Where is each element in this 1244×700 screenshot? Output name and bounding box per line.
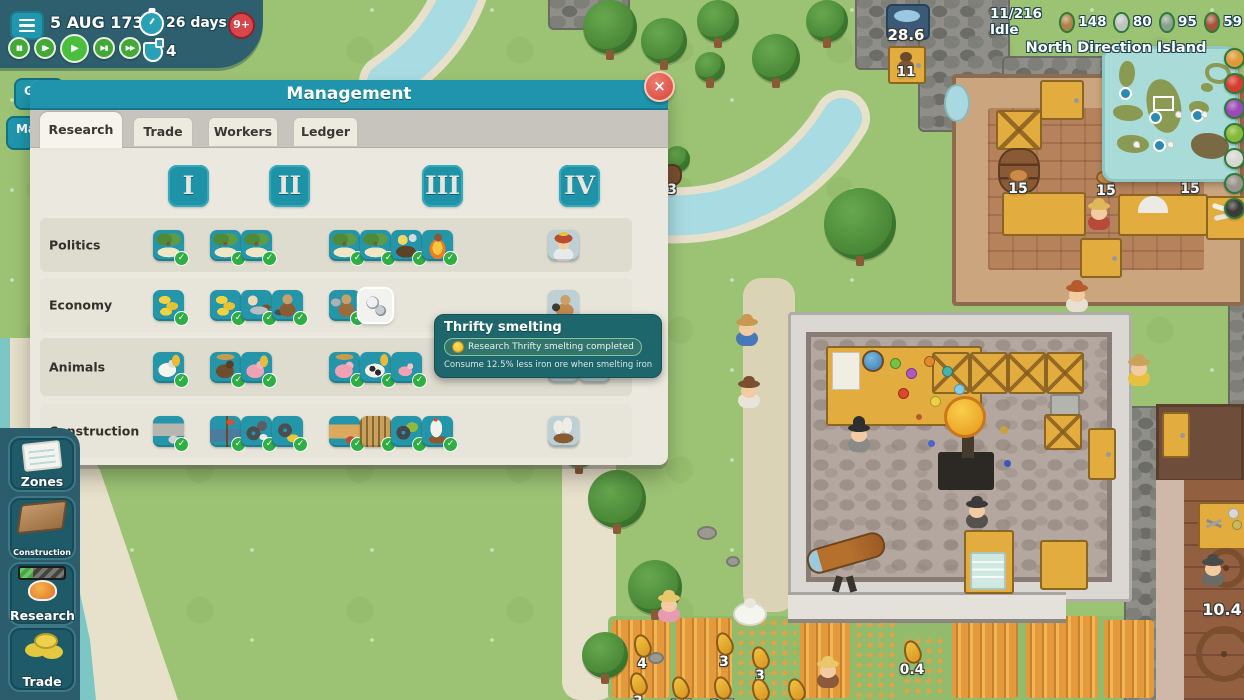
corn-icon [748, 676, 772, 700]
idle-status: 11/216 Idle [990, 6, 1052, 38]
research-porter[interactable] [272, 290, 303, 321]
orrery-planet [1000, 426, 1008, 434]
research-tooltip: Thrifty smelting Research Thrifty smelti… [434, 314, 662, 378]
speed-fast-button[interactable]: ▶▮ [93, 37, 115, 59]
minimap-resource-legend [1224, 48, 1244, 219]
wood-icon [1059, 12, 1075, 33]
minimap-ship [1167, 141, 1174, 148]
tier-I: I [168, 165, 209, 207]
tooltip-effect: Consume 12.5% less iron ore when smeltin… [444, 360, 652, 370]
corn-count: 4 [624, 656, 660, 672]
research-island[interactable] [241, 230, 272, 261]
corn-icon [630, 632, 654, 660]
dialog-header: Management [30, 80, 668, 110]
research-hammerman[interactable] [329, 290, 360, 321]
sidebar-item-research[interactable]: Research [8, 562, 76, 626]
corn-icon [712, 630, 736, 658]
research-coins[interactable] [210, 290, 241, 321]
zones-map-icon [22, 440, 63, 472]
minimap-ship [1133, 141, 1140, 148]
research-pigfence[interactable] [329, 352, 360, 383]
corn-patch [1104, 620, 1154, 698]
game-screen: 28.6 11 3 [0, 0, 1244, 700]
flask-orange [924, 356, 935, 367]
villager-character[interactable] [1064, 282, 1090, 316]
stone-icon [1113, 12, 1129, 33]
crate [1008, 352, 1046, 394]
flask-yellow [930, 396, 941, 407]
sidebar-item-zones[interactable]: Zones [8, 436, 76, 492]
spinning-wheel[interactable] [1196, 626, 1244, 682]
research-row-politics: Politics [40, 218, 632, 272]
flask-teal [942, 366, 953, 377]
corn-patch [952, 618, 1018, 698]
scientist-character[interactable] [846, 422, 872, 456]
workbench[interactable] [1002, 192, 1086, 236]
sidebar-item-construction[interactable]: Construction [8, 496, 76, 560]
sidebar-item-label: Zones [10, 474, 74, 489]
corn-icon [668, 674, 692, 700]
lab-door[interactable] [1088, 428, 1116, 480]
minimap-island [1201, 83, 1213, 92]
tooltip-status-pill: Research Thrifty smelting completed [444, 338, 642, 356]
rock [697, 526, 717, 540]
villager-character[interactable] [736, 378, 762, 412]
orrery-planet [928, 440, 935, 447]
tree [583, 0, 637, 54]
minimap-island [1113, 105, 1143, 121]
management-dialog: Management × ResearchTradeWorkersLedger … [30, 80, 668, 465]
research-piglet[interactable] [391, 352, 422, 383]
stopwatch-icon [139, 11, 164, 36]
corn-icon [748, 644, 772, 672]
corn-count: 0.4 [894, 662, 930, 678]
research-fire[interactable] [422, 230, 453, 261]
tab-bar: ResearchTradeWorkersLedger [30, 110, 668, 148]
crate [1044, 414, 1082, 450]
corn-patch [1026, 616, 1098, 698]
lightbulb-icon [452, 341, 464, 353]
tab-trade[interactable]: Trade [133, 117, 193, 146]
minimap-ship [1175, 111, 1182, 118]
metal-box [1050, 394, 1080, 416]
close-button[interactable]: × [644, 71, 675, 102]
tree [824, 188, 896, 260]
map-resource-grapes[interactable] [1224, 98, 1244, 119]
tier-II: II [269, 165, 310, 207]
resource-value: 80 [1133, 14, 1152, 30]
worker-character[interactable] [1086, 200, 1112, 234]
speed-fastest-button[interactable]: ▶▶ [119, 37, 141, 59]
tab-ledger[interactable]: Ledger [293, 117, 358, 146]
sidebar-item-label: Research [10, 608, 74, 623]
alert-badge[interactable]: 9+ [228, 12, 255, 39]
globe [862, 350, 884, 372]
tree [697, 0, 739, 42]
farmer-character[interactable] [656, 592, 682, 626]
research-saw[interactable] [241, 290, 272, 321]
sheep[interactable] [733, 602, 767, 628]
tier-III: III [422, 165, 463, 207]
crate [996, 110, 1042, 150]
research-ore[interactable] [359, 288, 392, 321]
orrery-planet [916, 414, 922, 420]
building-wall [788, 592, 1066, 623]
minimap-marker [1119, 87, 1132, 100]
potion-count: 4 [166, 42, 176, 60]
coins-icon [18, 632, 66, 662]
map-resource-tomato[interactable] [1224, 73, 1244, 94]
resource-value: 59 [1223, 14, 1242, 30]
research-boar[interactable] [210, 352, 241, 383]
minimap-viewport[interactable] [1153, 96, 1174, 111]
flask-red [898, 388, 909, 399]
tailor-character[interactable] [1200, 556, 1226, 590]
speed-controls: ▮▮▮▶▶▶▮▶▶ [8, 37, 141, 63]
rock [726, 556, 740, 567]
well-level: 28.6 [882, 26, 930, 44]
research-row-construction: Construction [40, 404, 632, 458]
research-cow[interactable] [360, 352, 391, 383]
sidebar-item-label: Construction [10, 548, 74, 557]
potion-icon [143, 42, 163, 62]
speed-slow-button[interactable]: ▮▶ [34, 37, 56, 59]
tier-IV: IV [559, 165, 600, 207]
bench-count-marker: 15 [1000, 168, 1036, 197]
house-count: 11 [884, 64, 928, 80]
side-table[interactable] [1040, 540, 1088, 590]
row-label: Economy [49, 298, 112, 313]
corn-icon [710, 674, 734, 700]
pause-button[interactable]: ▮▮ [8, 37, 30, 59]
resource-value: 148 [1078, 14, 1106, 30]
amber-progress-icon [18, 568, 66, 598]
row-label: Animals [49, 360, 105, 375]
corn-count-marker: 3 [778, 678, 814, 700]
sidebar-item-label: Trade [10, 674, 74, 689]
farmer-character[interactable] [815, 658, 841, 692]
bench-count: 15 [1000, 181, 1036, 197]
minimap-island [1117, 60, 1137, 88]
pond [944, 84, 970, 122]
orrery-planet [1004, 460, 1011, 467]
tailor-door[interactable] [1162, 412, 1190, 458]
tree [695, 52, 725, 82]
villager-character[interactable] [734, 316, 760, 350]
minimap-marker [1149, 111, 1162, 124]
corn-count-marker: 3 [706, 632, 742, 670]
research-boat[interactable] [422, 416, 453, 447]
top-bar: 5 AUG 1733 26 days 9+ ▮▮▮▶▶▶▮▶▶ 4 [0, 0, 263, 68]
research-toolrack[interactable] [360, 416, 391, 447]
spinner-rate: 10.4 [1196, 600, 1244, 619]
crate [970, 352, 1008, 394]
map-paper [832, 352, 860, 390]
skeleton-case [970, 552, 1006, 590]
tooltip-title: Thrifty smelting [444, 320, 652, 335]
minimap-ship [1201, 111, 1208, 118]
research-sheep[interactable] [153, 352, 184, 383]
workshop-door[interactable] [1040, 80, 1084, 120]
map-resource-rock[interactable] [1224, 173, 1244, 194]
bench-count: 15 [1172, 181, 1208, 197]
research-flaghouse[interactable] [210, 416, 241, 447]
research-princess[interactable] [548, 230, 579, 261]
row-label: Politics [49, 238, 100, 253]
tree [641, 18, 687, 64]
research-island[interactable] [329, 230, 360, 261]
speed-normal-button[interactable]: ▶ [60, 34, 89, 63]
corn-count: 3 [706, 654, 742, 670]
tooltip-status: Research Thrifty smelting completed [468, 342, 634, 352]
corn-count-marker: 0.4 [894, 640, 930, 678]
menu-button[interactable] [10, 11, 44, 40]
research-coins[interactable] [153, 290, 184, 321]
corn-patch [854, 620, 898, 698]
days-counter: 26 days [166, 15, 227, 31]
dialog-title: Management [30, 80, 668, 108]
tailor-wall [1156, 480, 1184, 700]
flask-purple [906, 368, 917, 379]
flask-green [890, 358, 901, 369]
rock-cliff [1228, 298, 1244, 412]
scientist-character[interactable] [964, 498, 990, 532]
thread-spool [1228, 508, 1239, 519]
corn-count-marker: 4 [624, 634, 660, 672]
map-resource-cabbage[interactable] [1224, 123, 1244, 144]
corn-count-marker: 4.5 [662, 676, 698, 700]
research-lamp[interactable] [391, 230, 422, 261]
map-resource-stone[interactable] [1224, 148, 1244, 169]
research-geargreen[interactable] [391, 416, 422, 447]
bricks-icon [1204, 12, 1220, 33]
research-woodwall[interactable] [329, 416, 360, 447]
island-name: North Direction Island [990, 40, 1242, 56]
research-ship[interactable] [548, 416, 579, 447]
tree [588, 470, 646, 528]
research-island[interactable] [360, 230, 391, 261]
workshop-door[interactable] [1080, 238, 1122, 278]
minimap[interactable] [1102, 46, 1238, 182]
research-stonewall[interactable] [153, 416, 184, 447]
pickaxe-icon [1159, 12, 1175, 33]
tree [806, 0, 848, 42]
research-gearhammer[interactable] [241, 416, 272, 447]
villager-character[interactable] [1126, 356, 1152, 390]
tab-research[interactable]: Research [40, 112, 122, 148]
map-resource-coal[interactable] [1224, 198, 1244, 219]
flask-blue [954, 384, 965, 395]
research-pig[interactable] [241, 352, 272, 383]
tree [752, 34, 800, 82]
orrery-sun [944, 396, 986, 438]
tab-workers[interactable]: Workers [208, 117, 278, 146]
status-bar: 11/216 Idle148809559 North Direction Isl… [990, 6, 1242, 56]
crate [1046, 352, 1084, 394]
research-island[interactable] [210, 230, 241, 261]
resource-value: 95 [1178, 14, 1197, 30]
thread-spool [1232, 520, 1242, 530]
bench-count: 15 [1088, 183, 1124, 199]
corn-icon [626, 670, 650, 698]
resource-line: 11/216 Idle148809559 [990, 6, 1242, 38]
research-island[interactable] [153, 230, 184, 261]
sidebar-item-trade[interactable]: Trade [8, 626, 76, 692]
wood-floor-icon [16, 500, 67, 535]
corn-icon [784, 676, 808, 700]
minimap-marker [1153, 139, 1166, 152]
corn-count-marker: 3 [742, 678, 778, 700]
corn-count-marker: 3 [620, 672, 656, 700]
corn-count-marker: 3.7 [704, 676, 740, 700]
research-geargold[interactable] [272, 416, 303, 447]
